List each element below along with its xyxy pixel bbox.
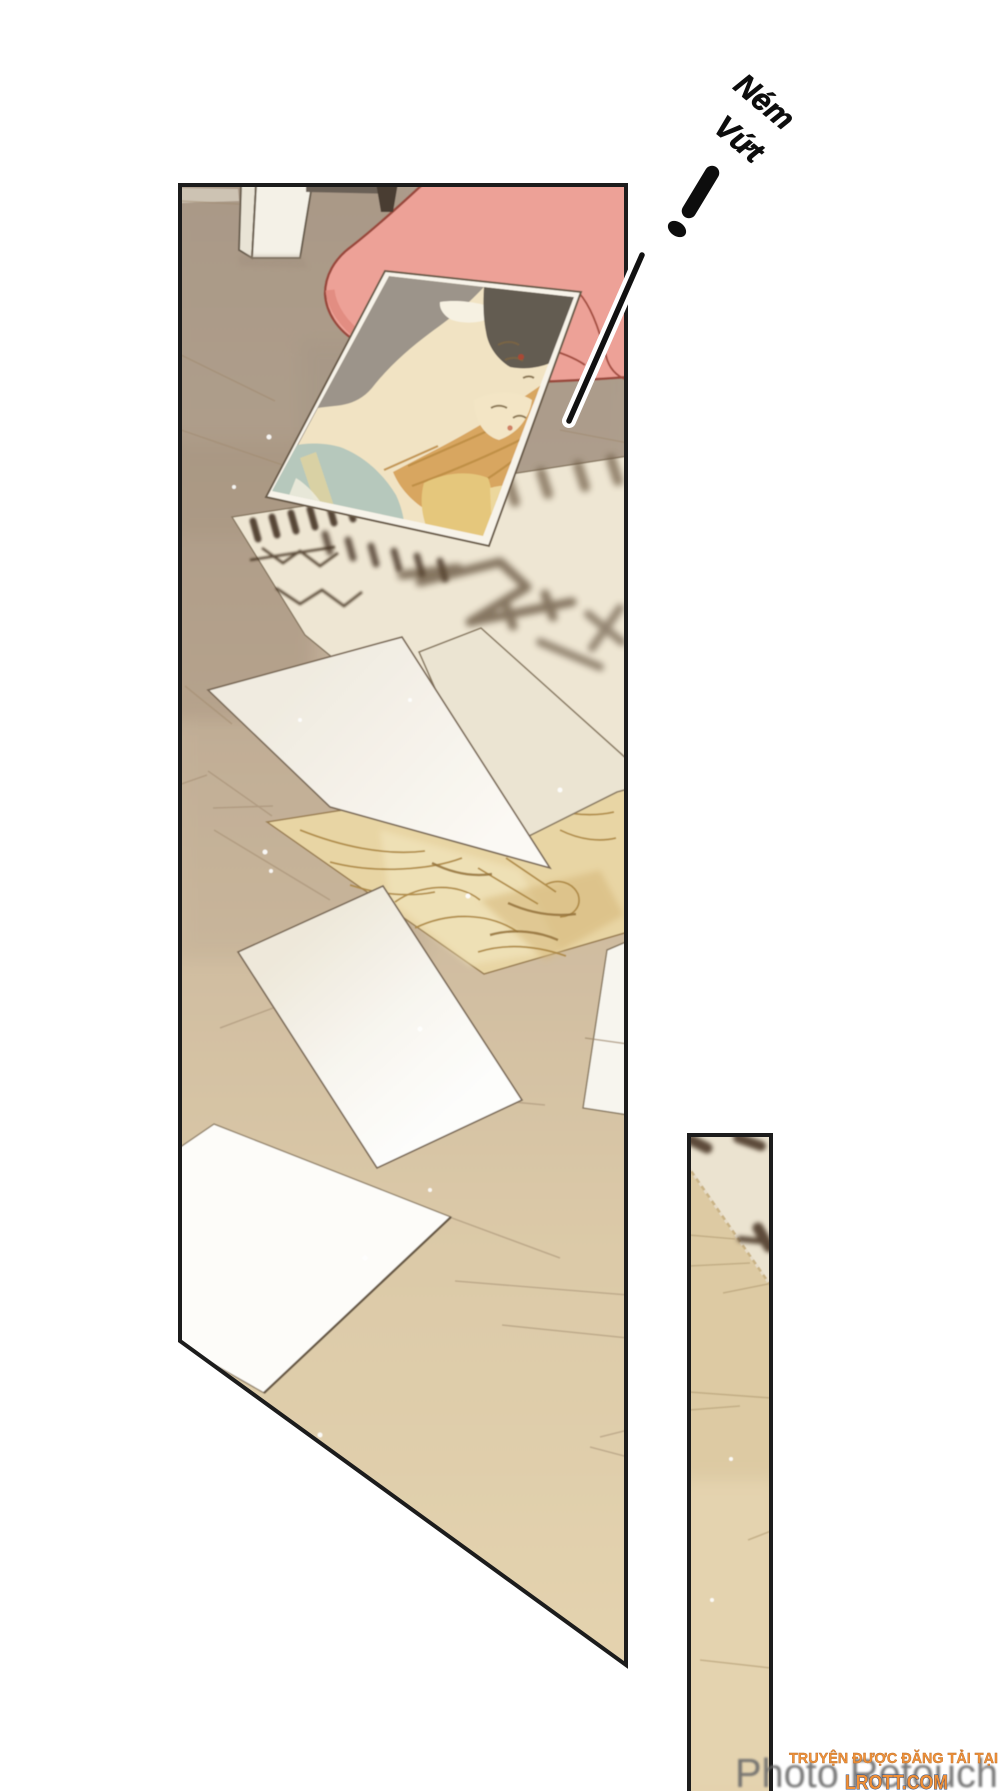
svg-text:TRUYỆN ĐƯỢC ĐĂNG TẢI TẠI: TRUYỆN ĐƯỢC ĐĂNG TẢI TẠI	[789, 1749, 998, 1767]
svg-text:LROTT.COM: LROTT.COM	[845, 1772, 948, 1791]
